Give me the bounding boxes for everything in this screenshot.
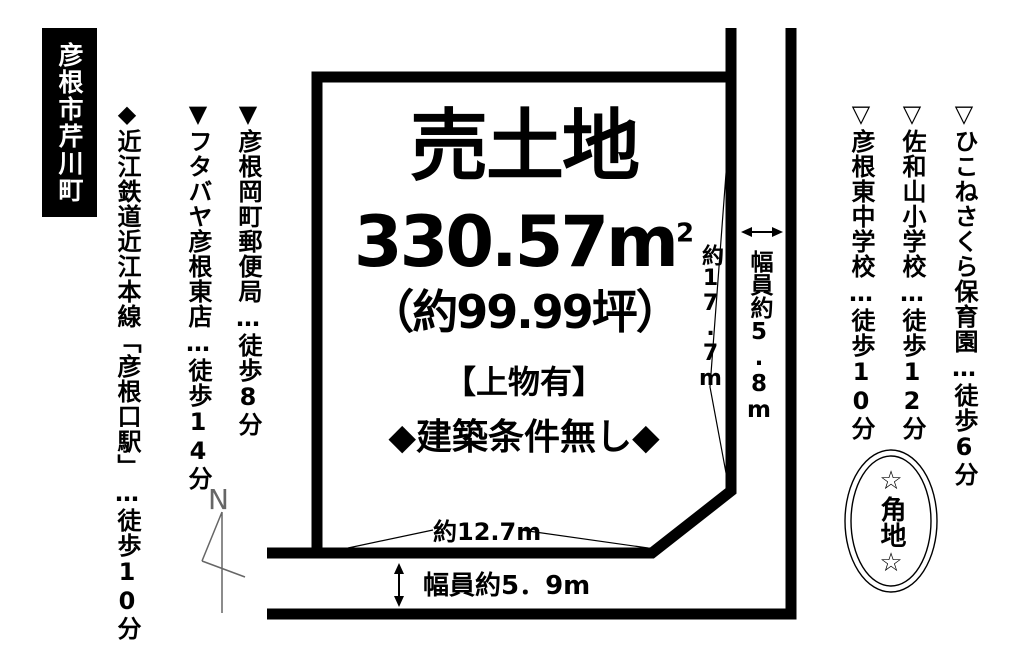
poi-omi-railway-station: ◆近江鉄道近江本線「彦根口駅」…徒歩10分: [115, 100, 139, 641]
location-box: 彦根市芹川町: [42, 28, 97, 217]
land-area-m2: 330.57m2: [317, 207, 731, 277]
width-arrow-bottom-head-bottom: [394, 596, 404, 607]
poi-hikone-higashi-junior-high: ▽彦根東中学校…徒歩10分: [849, 100, 873, 441]
north-label: N: [208, 486, 229, 514]
poi-hikone-sakura-nursery: ▽ひこねさくら保育園…徒歩6分: [952, 100, 976, 487]
land-area-tsubo: （約99.99坪）: [317, 289, 731, 335]
north-arrow: [202, 512, 245, 613]
width-arrow-bottom-head-top: [394, 563, 404, 574]
width-arrow-right-head-left: [741, 227, 752, 237]
land-sale-flyer: 彦根市芹川町 ◆近江鉄道近江本線「彦根口駅」…徒歩10分 ▼フタバヤ彦根東店…徒…: [0, 0, 1024, 651]
land-title: 売土地: [317, 108, 731, 186]
poi-futabaya-store: ▼フタバヤ彦根東店…徒歩14分: [186, 100, 210, 491]
location-label: 彦根市芹川町: [57, 42, 82, 204]
building-note: 【上物有】: [317, 366, 731, 398]
poi-sawayama-elementary: ▽佐和山小学校…徒歩12分: [900, 100, 924, 441]
condition-note: ◆建築条件無し◆: [317, 420, 731, 456]
land-area-value: 330.57m: [354, 201, 676, 283]
road-width-bottom-label: 幅員約5．9m: [423, 573, 590, 599]
dim-label-17m: 約17.7m: [699, 244, 721, 391]
road-width-right-label: 幅員約5.8m: [747, 250, 770, 423]
land-area-sup: 2: [676, 218, 694, 248]
corner-badge-label: ☆角地☆: [878, 466, 904, 578]
dim-label-12m: 約12.7m: [433, 520, 541, 544]
width-arrow-right-head-right: [772, 227, 783, 237]
poi-okamachi-post-office: ▼彦根岡町郵便局…徒歩8分: [236, 100, 260, 437]
